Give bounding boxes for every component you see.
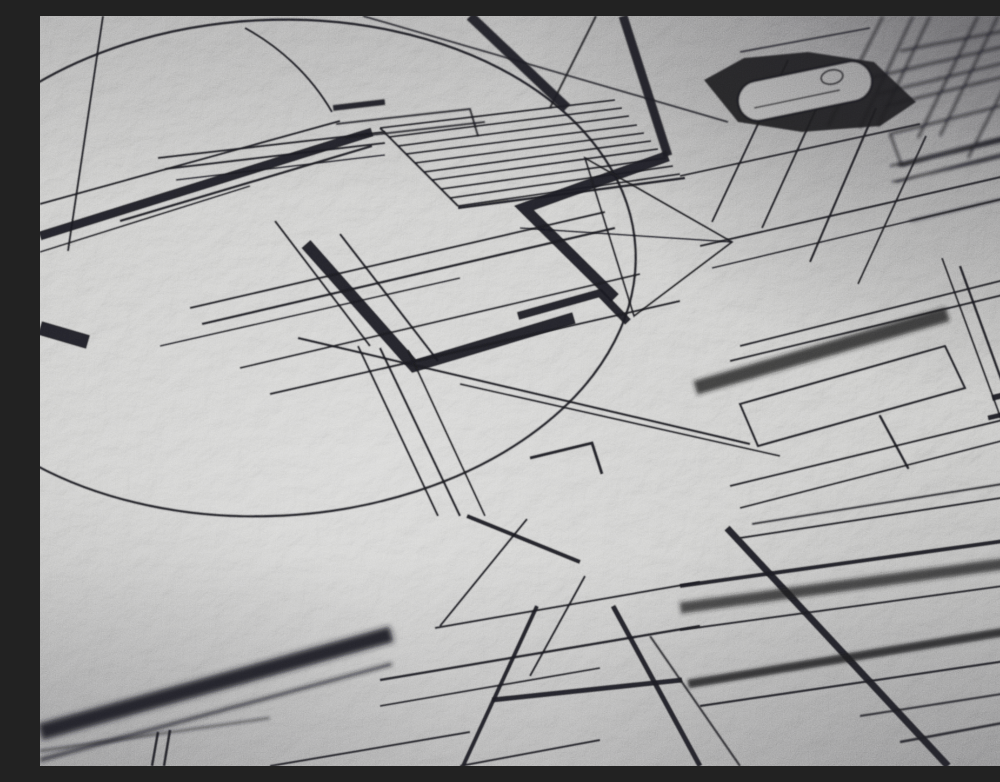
- macro-photo-of-line-drawing: [40, 16, 1000, 766]
- artwork-canvas: [40, 16, 1000, 766]
- film-grain: [40, 16, 1000, 766]
